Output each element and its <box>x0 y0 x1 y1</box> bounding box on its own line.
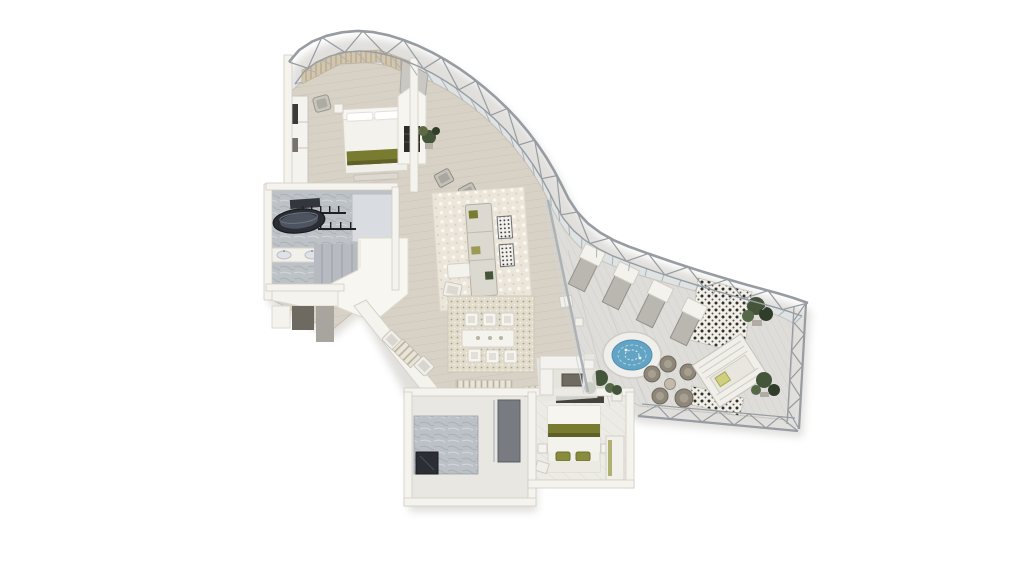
head-white <box>548 406 600 424</box>
deck-stool <box>575 318 583 326</box>
closet-niche-wall <box>272 306 290 328</box>
nightstand <box>334 104 343 113</box>
olive-pillow <box>556 452 570 461</box>
sofa-pillow-green <box>485 271 494 280</box>
sofa-pillow-olive <box>471 246 481 255</box>
guest-bed <box>548 406 600 472</box>
mullion <box>612 256 613 265</box>
floor-plan-render <box>0 0 1024 575</box>
bench-cushion <box>608 440 612 476</box>
patterned-side-table <box>499 244 515 267</box>
closet-niche-dark <box>292 306 314 330</box>
pillow <box>347 112 373 121</box>
patterned-side-table <box>497 216 513 239</box>
pillow <box>375 111 401 120</box>
closet-niche <box>316 306 334 342</box>
mid-white <box>548 437 600 452</box>
outdoor-sofa-set <box>537 354 598 402</box>
sofa-pillow-olive <box>469 210 479 219</box>
outdoor-seat <box>584 360 594 369</box>
page-canvas <box>0 0 1024 575</box>
foot-base <box>548 461 600 472</box>
olive-pillow <box>576 452 590 461</box>
shower-column <box>498 400 520 462</box>
olive-band-shade <box>548 433 600 437</box>
outdoor-coffee-table <box>562 374 582 386</box>
shower-area <box>352 194 396 242</box>
dining-table <box>462 330 514 347</box>
coffee-table <box>447 263 470 279</box>
nightstand <box>538 444 547 453</box>
terrace-planter <box>612 385 622 401</box>
